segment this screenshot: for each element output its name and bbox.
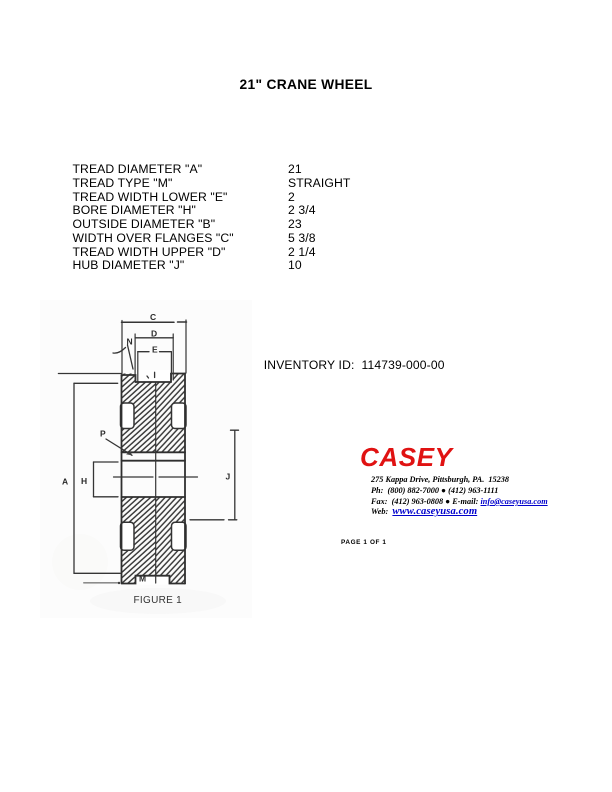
svg-text:M: M [139, 574, 146, 584]
svg-text:E: E [152, 345, 158, 355]
svg-text:H: H [81, 476, 87, 486]
svg-text:C: C [150, 312, 156, 322]
svg-text:A: A [62, 477, 68, 487]
svg-text:P: P [100, 429, 106, 439]
svg-text:D: D [151, 329, 157, 339]
svg-text:FIGURE 1: FIGURE 1 [134, 595, 183, 606]
svg-text:J: J [226, 472, 231, 482]
